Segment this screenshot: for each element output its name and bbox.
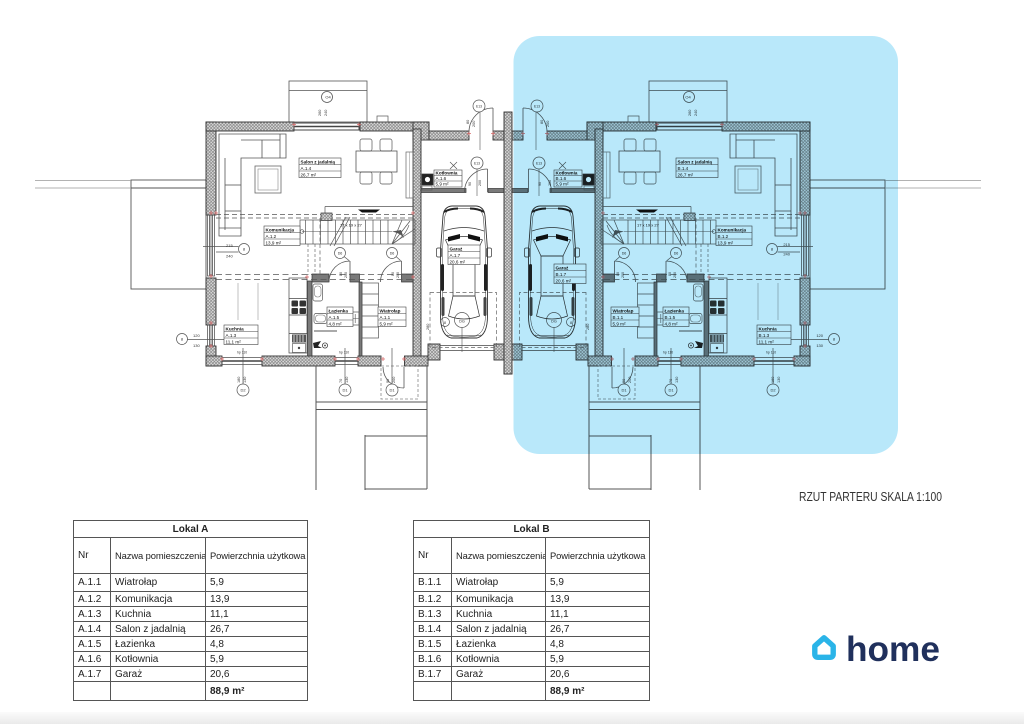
svg-text:A.1.5: A.1.5 bbox=[329, 315, 340, 320]
svg-text:8: 8 bbox=[444, 321, 446, 325]
svg-text:200: 200 bbox=[478, 180, 482, 186]
svg-text:Salon z jadalnią: Salon z jadalnią bbox=[301, 159, 336, 164]
svg-text:200: 200 bbox=[396, 272, 400, 278]
svg-text:A.1.1: A.1.1 bbox=[380, 315, 391, 320]
svg-text:A.1.2: A.1.2 bbox=[266, 234, 277, 239]
svg-text:17 x 19 x 27: 17 x 19 x 27 bbox=[340, 223, 363, 228]
svg-text:90: 90 bbox=[386, 379, 390, 383]
svg-text:D6: D6 bbox=[390, 252, 395, 256]
svg-text:80: 80 bbox=[339, 272, 343, 276]
svg-text:D1: D1 bbox=[389, 388, 395, 393]
svg-text:5,9 m²: 5,9 m² bbox=[380, 321, 393, 326]
svg-text:home: home bbox=[846, 630, 940, 669]
svg-text:E13: E13 bbox=[476, 105, 482, 109]
svg-text:20,6 m²: 20,6 m² bbox=[450, 259, 466, 264]
svg-text:D2: D2 bbox=[240, 388, 246, 393]
svg-text:120: 120 bbox=[193, 333, 200, 338]
svg-text:RZUT PARTERU SKALA 1:100: RZUT PARTERU SKALA 1:100 bbox=[799, 490, 942, 504]
svg-text:200: 200 bbox=[344, 272, 348, 278]
svg-text:hp 110: hp 110 bbox=[339, 351, 349, 355]
svg-text:200: 200 bbox=[392, 377, 396, 383]
svg-text:11,1 m²: 11,1 m² bbox=[226, 339, 242, 344]
svg-text:26,7 m²: 26,7 m² bbox=[301, 172, 317, 177]
svg-text:260: 260 bbox=[318, 110, 322, 116]
svg-text:D1: D1 bbox=[342, 388, 348, 393]
svg-text:180: 180 bbox=[237, 377, 241, 383]
svg-text:130: 130 bbox=[345, 377, 349, 383]
svg-text:Kotłownia: Kotłownia bbox=[436, 171, 458, 176]
svg-text:90: 90 bbox=[468, 182, 472, 186]
svg-text:D6: D6 bbox=[338, 252, 343, 256]
svg-text:80: 80 bbox=[466, 120, 470, 124]
svg-text:80: 80 bbox=[391, 272, 395, 276]
svg-text:A.1.3: A.1.3 bbox=[226, 333, 237, 338]
svg-text:A.1.7: A.1.7 bbox=[450, 253, 461, 258]
svg-text:240: 240 bbox=[226, 254, 233, 259]
svg-text:O4: O4 bbox=[325, 95, 331, 100]
svg-text:A.1.6: A.1.6 bbox=[436, 176, 447, 181]
svg-text:70: 70 bbox=[339, 379, 343, 383]
svg-text:130: 130 bbox=[243, 377, 247, 383]
svg-text:A.1.4: A.1.4 bbox=[301, 166, 312, 171]
svg-text:215: 215 bbox=[226, 243, 233, 248]
svg-text:5,9 m²: 5,9 m² bbox=[436, 182, 449, 187]
svg-text:Kuchnia: Kuchnia bbox=[226, 326, 245, 331]
svg-text:280: 280 bbox=[426, 324, 430, 330]
svg-text:Komunikacja: Komunikacja bbox=[266, 227, 295, 232]
svg-text:Łazienka: Łazienka bbox=[329, 308, 349, 313]
svg-text:240: 240 bbox=[324, 110, 328, 116]
svg-text:hp 110: hp 110 bbox=[237, 351, 247, 355]
svg-text:Wiatrołap: Wiatrołap bbox=[380, 308, 401, 313]
svg-text:200: 200 bbox=[472, 121, 476, 127]
svg-text:13,9 m²: 13,9 m² bbox=[266, 240, 282, 245]
svg-text:130: 130 bbox=[193, 343, 200, 348]
svg-text:4,8 m²: 4,8 m² bbox=[329, 321, 342, 326]
svg-text:DG: DG bbox=[459, 320, 465, 324]
svg-text:E13: E13 bbox=[474, 162, 480, 166]
svg-text:Garaż: Garaż bbox=[450, 246, 463, 251]
